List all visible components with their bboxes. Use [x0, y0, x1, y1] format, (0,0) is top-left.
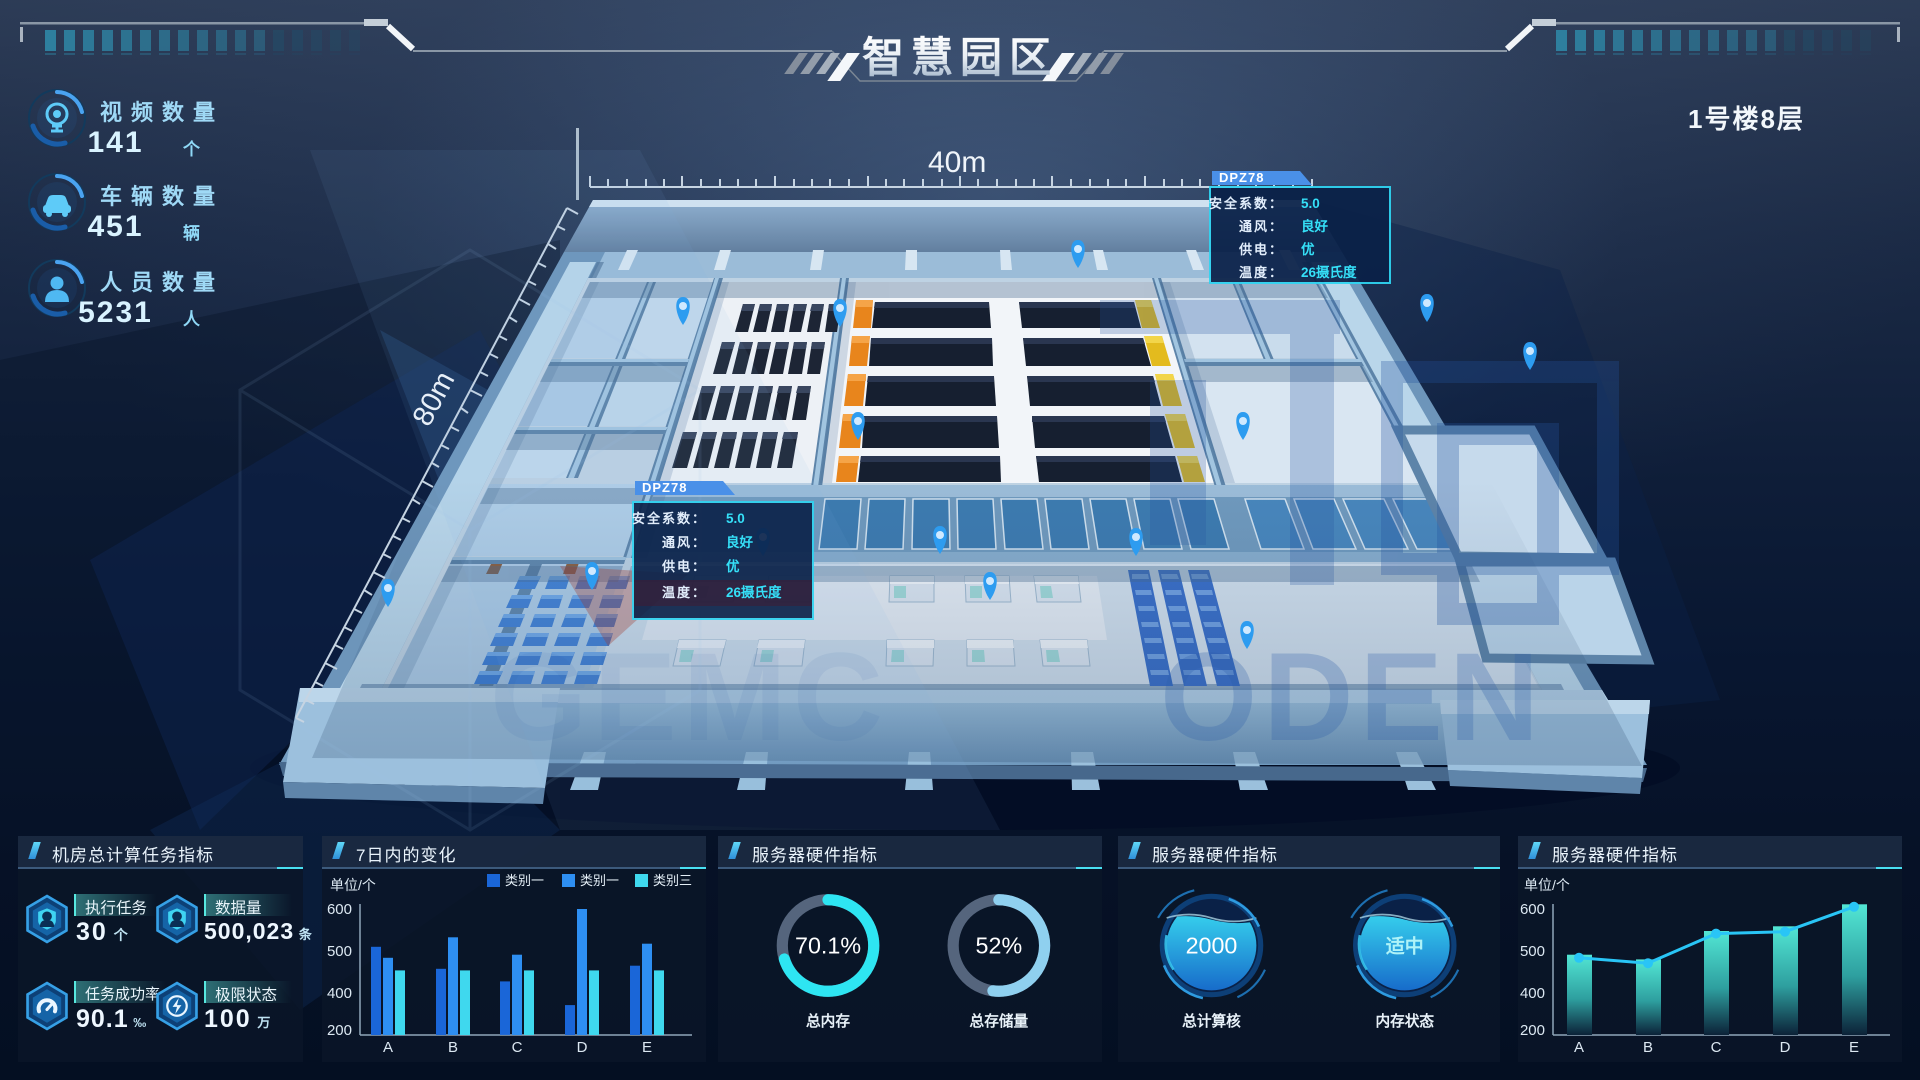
svg-text:温度：: 温度： — [662, 585, 707, 600]
svg-text:ODEN: ODEN — [1160, 628, 1545, 767]
svg-text:C: C — [1711, 1039, 1722, 1056]
svg-text:B: B — [448, 1039, 458, 1056]
svg-text:良好: 良好 — [726, 534, 754, 550]
svg-text:温度：: 温度： — [1239, 265, 1284, 280]
svg-text:B: B — [1643, 1039, 1653, 1056]
svg-text:C: C — [512, 1039, 523, 1056]
svg-text:70.1%: 70.1% — [795, 932, 861, 958]
svg-text:D: D — [1780, 1039, 1791, 1056]
svg-text:200: 200 — [1520, 1022, 1545, 1039]
svg-text:安全系数：: 安全系数： — [1209, 196, 1284, 211]
svg-text:200: 200 — [327, 1022, 352, 1039]
svg-text:2000: 2000 — [1186, 932, 1238, 958]
svg-text:总存储量: 总存储量 — [970, 1012, 1029, 1030]
svg-text:5.0: 5.0 — [1301, 196, 1320, 211]
svg-text:E: E — [1849, 1039, 1859, 1056]
svg-text:500: 500 — [1520, 943, 1545, 960]
svg-text:A: A — [383, 1039, 393, 1056]
svg-text:通风：: 通风： — [662, 535, 707, 550]
svg-text:总计算核: 总计算核 — [1182, 1012, 1241, 1030]
svg-text:内存状态: 内存状态 — [1375, 1012, 1434, 1030]
svg-text:26摄氏度: 26摄氏度 — [1301, 264, 1357, 280]
svg-text:通风：: 通风： — [1239, 219, 1284, 234]
svg-text:40m: 40m — [928, 146, 986, 179]
svg-text:单位/个: 单位/个 — [1524, 877, 1570, 893]
svg-text:5.0: 5.0 — [726, 511, 745, 526]
svg-text:500: 500 — [327, 943, 352, 960]
svg-text:GEMC: GEMC — [490, 628, 889, 767]
svg-text:类别一: 类别一 — [580, 873, 619, 888]
svg-text:类别三: 类别三 — [653, 873, 692, 888]
svg-text:供电：: 供电： — [661, 559, 707, 574]
svg-text:600: 600 — [1520, 901, 1545, 918]
svg-text:A: A — [1574, 1039, 1584, 1056]
svg-text:1号楼8层: 1号楼8层 — [1688, 104, 1805, 134]
svg-text:供电：: 供电： — [1238, 242, 1284, 257]
svg-text:良好: 良好 — [1301, 218, 1329, 234]
svg-text:优: 优 — [726, 558, 740, 574]
svg-text:智慧园区: 智慧园区 — [862, 34, 1058, 81]
svg-text:DPZ78: DPZ78 — [1219, 170, 1264, 185]
svg-text:600: 600 — [327, 901, 352, 918]
svg-text:优: 优 — [1301, 241, 1315, 257]
svg-text:E: E — [642, 1039, 652, 1056]
svg-text:52%: 52% — [976, 932, 1023, 958]
svg-text:安全系数：: 安全系数： — [632, 511, 707, 526]
svg-text:类别一: 类别一 — [505, 873, 544, 888]
svg-text:适中: 适中 — [1386, 934, 1424, 957]
svg-text:单位/个: 单位/个 — [330, 877, 376, 893]
svg-text:400: 400 — [327, 985, 352, 1002]
svg-text:DPZ78: DPZ78 — [642, 480, 687, 495]
svg-text:26摄氏度: 26摄氏度 — [726, 584, 782, 600]
svg-text:D: D — [577, 1039, 588, 1056]
svg-text:总内存: 总内存 — [806, 1012, 850, 1030]
svg-text:400: 400 — [1520, 985, 1545, 1002]
